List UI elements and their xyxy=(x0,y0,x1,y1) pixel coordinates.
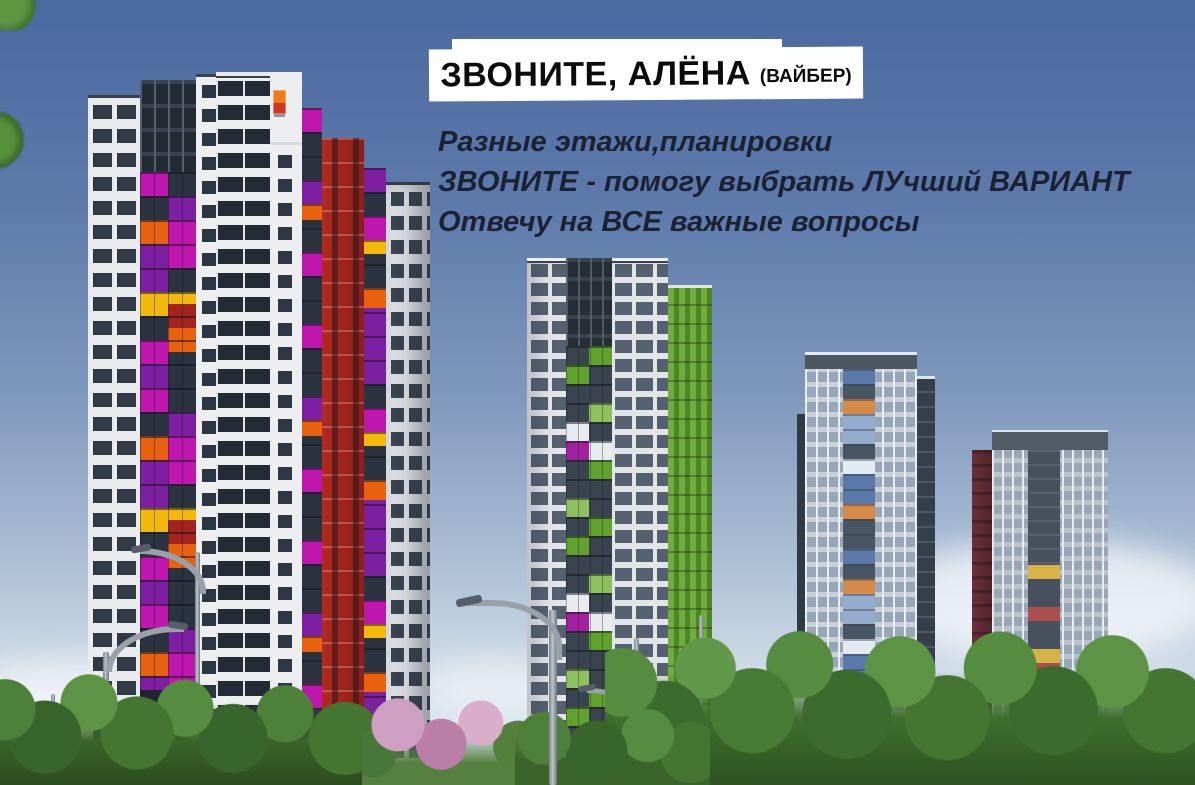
tower-2-dark-strip xyxy=(566,258,612,346)
foliage-top-left xyxy=(0,0,40,30)
headline-box: ЗВОНИТЕ, АЛЁНА (ВАЙБЕР) xyxy=(429,46,863,101)
ad-body: Разные этажи,планировки ЗВОНИТЕ - помогу… xyxy=(438,122,1118,242)
headline-note: (ВАЙБЕР) xyxy=(760,58,852,89)
real-estate-ad-photo: ЗВОНИТЕ, АЛЁНА (ВАЙБЕР) Разные этажи,пла… xyxy=(0,0,1195,785)
headline-text: ЗВОНИТЕ, АЛЁНА xyxy=(440,54,751,95)
ad-line-3: Отвечу на ВСЕ важные вопросы xyxy=(438,202,1118,242)
treeline-left xyxy=(0,648,385,785)
developer-logo xyxy=(273,90,286,114)
trees-center xyxy=(515,700,710,785)
tower-1-dark-glass-top xyxy=(140,80,196,172)
ad-line-2: ЗВОНИТЕ - помогу выбрать ЛУчший ВАРИАНТ xyxy=(438,162,1118,202)
ad-line-1: Разные этажи,планировки xyxy=(438,122,1118,162)
foliage-left xyxy=(0,112,26,168)
